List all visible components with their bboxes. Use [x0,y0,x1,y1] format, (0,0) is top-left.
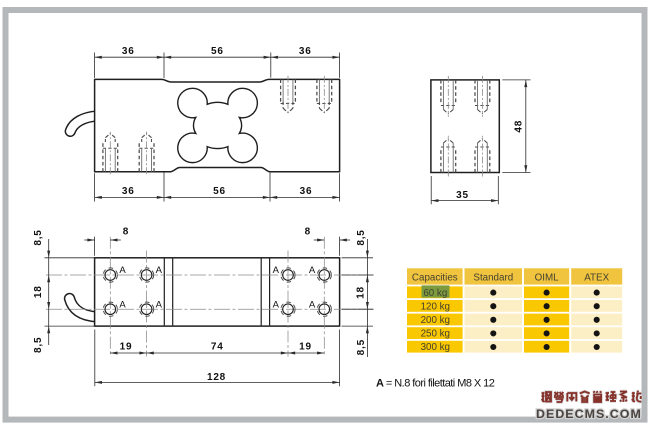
svg-text:56: 56 [213,186,226,197]
svg-text:A: A [156,265,163,276]
svg-text:A: A [156,299,163,310]
svg-text:ATEX: ATEX [584,273,609,284]
svg-text:19: 19 [299,342,312,353]
svg-text:8,5: 8,5 [33,229,44,245]
svg-text:Standard: Standard [473,273,513,284]
svg-text:60 kg: 60 kg [423,288,447,299]
svg-text:56: 56 [211,46,224,57]
svg-text:74: 74 [211,342,224,353]
svg-text:8,5: 8,5 [356,229,367,245]
svg-text:18: 18 [355,286,366,299]
svg-text:8: 8 [305,226,311,237]
svg-text:36: 36 [122,46,135,57]
svg-text:128: 128 [207,372,226,383]
svg-text:8,5: 8,5 [356,339,367,355]
svg-text:48: 48 [513,120,524,133]
svg-text:250 kg: 250 kg [421,329,450,340]
svg-text:18: 18 [33,285,44,298]
svg-text:A: A [309,265,316,276]
svg-text:OIML: OIML [535,273,560,284]
svg-text:A: A [309,299,316,310]
svg-text:A: A [273,265,280,276]
svg-text:A = N.8 fori filettati M8 X 12: A = N.8 fori filettati M8 X 12 [376,378,495,390]
svg-text:Capacities: Capacities [412,273,458,284]
svg-text:19: 19 [120,342,133,353]
svg-text:36: 36 [122,186,135,197]
svg-text:300 kg: 300 kg [421,342,450,353]
svg-text:A: A [119,265,126,276]
svg-text:36: 36 [299,46,312,57]
svg-text:DEDECMS.COM: DEDECMS.COM [536,407,642,421]
svg-text:A: A [119,299,126,310]
svg-text:8,5: 8,5 [33,337,44,353]
svg-text:120 kg: 120 kg [421,301,450,312]
svg-text:200 kg: 200 kg [421,315,450,326]
svg-text:36: 36 [300,186,313,197]
svg-text:8: 8 [123,226,129,237]
svg-text:A: A [273,299,280,310]
svg-text:35: 35 [456,190,469,201]
